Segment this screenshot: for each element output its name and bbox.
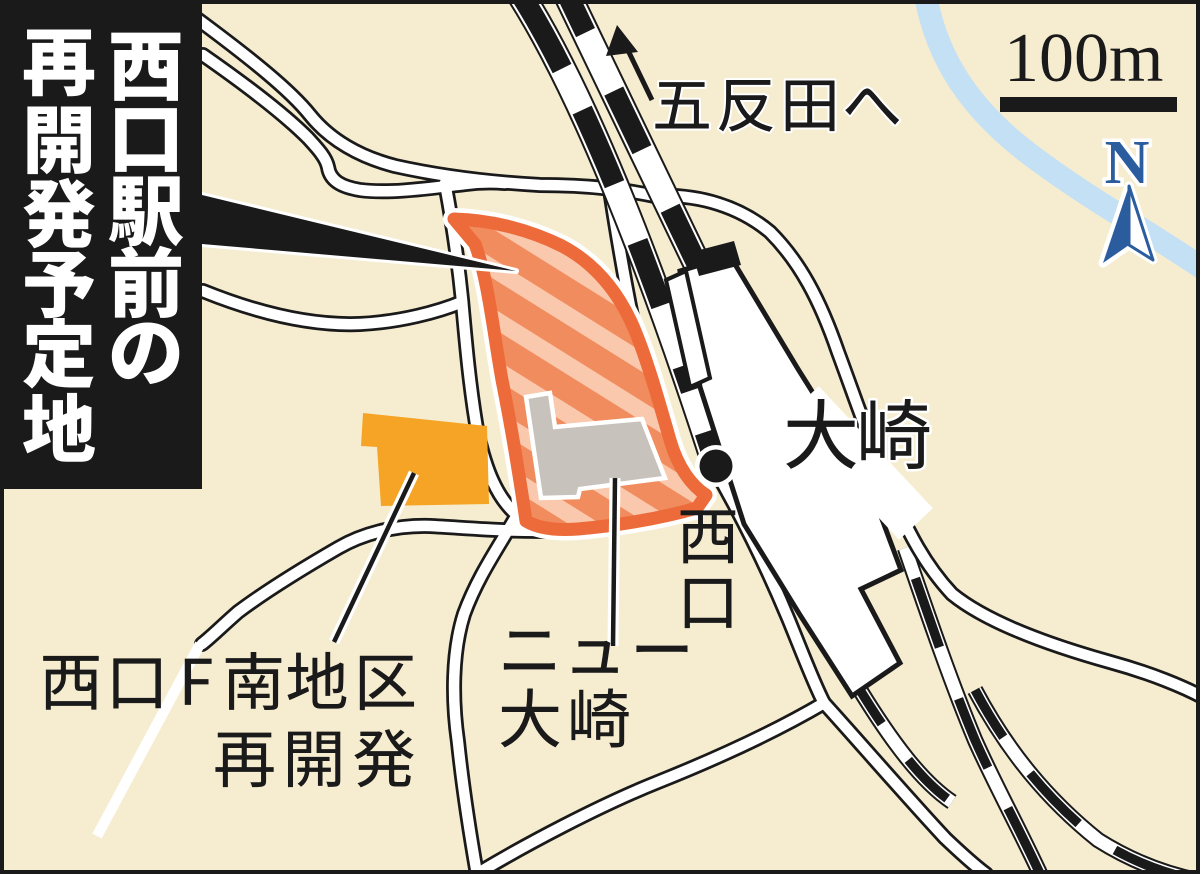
svg-text:100m: 100m [1004, 20, 1163, 97]
